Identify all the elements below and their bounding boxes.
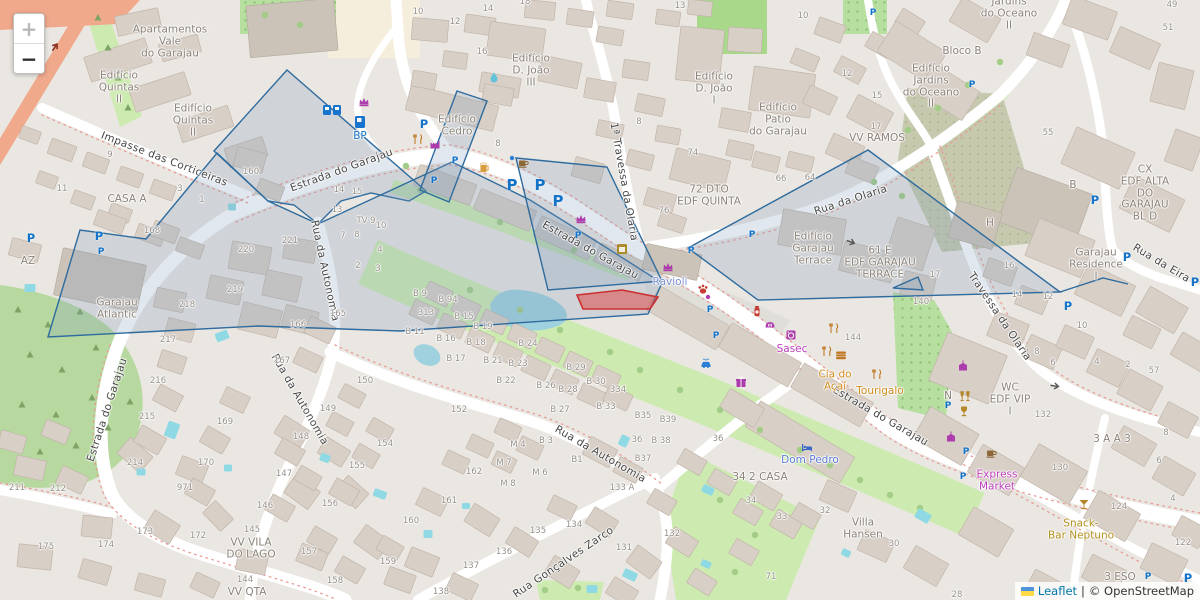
pharmacy-icon [755, 306, 760, 316]
bush-icon [297, 22, 303, 28]
bush-icon [752, 532, 758, 538]
attribution-separator: | [1081, 584, 1085, 598]
swimming-pool [25, 284, 36, 292]
zoom-out-button[interactable]: − [14, 44, 44, 73]
bush-icon [717, 407, 723, 413]
building [727, 27, 763, 53]
building [17, 544, 53, 570]
bush-icon [905, 127, 911, 133]
building [486, 21, 546, 62]
building [411, 17, 449, 42]
ukraine-flag-icon [1021, 587, 1034, 596]
building [655, 9, 681, 27]
swimming-pool [462, 503, 470, 509]
swimming-pool [137, 469, 146, 476]
bush-icon [717, 497, 723, 503]
building [81, 515, 113, 539]
burger-icon [836, 352, 846, 360]
bush-icon [857, 477, 863, 483]
bush-icon [542, 587, 548, 593]
meter-icon [333, 105, 341, 115]
bush-icon [965, 82, 971, 88]
bush-icon [732, 569, 738, 575]
bush-icon [997, 59, 1003, 65]
leaflet-link[interactable]: Leaflet [1038, 584, 1077, 598]
leaflet-map-canvas[interactable]: Estrada do GarajauEstrada do GarajauEstr… [0, 0, 1200, 600]
zoom-in-button[interactable]: + [14, 14, 44, 44]
swimming-pool [224, 465, 232, 472]
bush-icon [262, 12, 268, 18]
building [246, 0, 338, 58]
building [675, 26, 724, 84]
building [524, 0, 556, 21]
laundry-icon [787, 331, 796, 340]
bush-icon [677, 387, 683, 393]
retail-zone [328, 0, 420, 58]
building [442, 50, 468, 69]
dotb-icon [510, 156, 514, 160]
bush-icon [757, 427, 763, 433]
bush-icon [887, 492, 893, 498]
osm-copyright: © OpenStreetMap [1089, 584, 1194, 598]
bush-icon [607, 349, 613, 355]
bush-icon [575, 585, 581, 591]
building [622, 59, 650, 80]
attribution-bar: Leaflet | © OpenStreetMap [1015, 582, 1200, 600]
bush-icon [557, 327, 563, 333]
zoom-control: + − [13, 13, 45, 74]
building [687, 0, 712, 17]
building [748, 66, 816, 118]
kiosk-icon [617, 244, 627, 254]
bush-icon [935, 105, 941, 111]
dotp-icon [706, 295, 710, 299]
map-tiles [0, 0, 1200, 600]
bush-icon [637, 367, 643, 373]
building [606, 0, 634, 19]
bush-icon [403, 163, 409, 169]
meter-icon [323, 105, 331, 115]
swimming-pool [587, 585, 598, 593]
fuel-icon [355, 116, 365, 128]
swimming-pool [424, 530, 433, 538]
building [566, 8, 594, 27]
bush-icon [827, 462, 833, 468]
